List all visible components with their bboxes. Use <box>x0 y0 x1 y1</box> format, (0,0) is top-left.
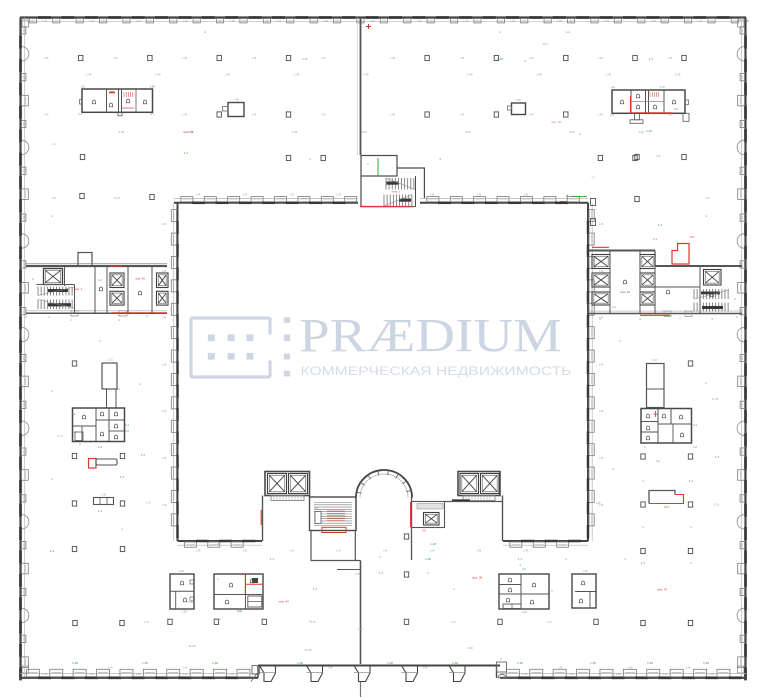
svg-text:1.1: 1.1 <box>237 609 241 613</box>
svg-text:КОММЕРЧЕСКАЯ НЕДВИЖИМОСТЬ: КОММЕРЧЕСКАЯ НЕДВИЖИМОСТЬ <box>301 364 572 378</box>
svg-text:41.98: 41.98 <box>188 644 196 648</box>
svg-text:1.1: 1.1 <box>653 237 657 241</box>
svg-text:16.16: 16.16 <box>114 197 121 200</box>
svg-text:1.48: 1.48 <box>155 73 161 77</box>
svg-text:1.1: 1.1 <box>566 30 570 34</box>
svg-text:1.48: 1.48 <box>646 129 652 133</box>
svg-text:1.1: 1.1 <box>693 423 697 427</box>
svg-text:5.18: 5.18 <box>659 85 665 89</box>
svg-text:1.48: 1.48 <box>604 19 610 23</box>
svg-text:пом. 44: пом. 44 <box>278 600 289 604</box>
svg-text:1.48: 1.48 <box>233 98 239 102</box>
svg-text:1.48: 1.48 <box>582 569 588 573</box>
svg-text:1.1: 1.1 <box>313 587 317 591</box>
svg-text:1.48: 1.48 <box>656 155 661 158</box>
svg-text:1.48: 1.48 <box>162 458 167 460</box>
svg-text:1.78: 1.78 <box>355 573 360 576</box>
svg-text:1.48: 1.48 <box>162 364 167 366</box>
svg-text:пом. 40: пом. 40 <box>551 120 562 124</box>
svg-text:1.28: 1.28 <box>596 502 601 505</box>
svg-text:1.98: 1.98 <box>521 610 527 614</box>
svg-text:3.08: 3.08 <box>361 130 367 134</box>
svg-text:1.48: 1.48 <box>459 57 464 60</box>
svg-text:1.48: 1.48 <box>89 672 95 676</box>
svg-text:1.48: 1.48 <box>459 114 464 117</box>
svg-text:3.08: 3.08 <box>465 130 471 134</box>
svg-text:1.48: 1.48 <box>650 19 656 23</box>
svg-text:17.71: 17.71 <box>57 435 64 438</box>
svg-text:1.48: 1.48 <box>183 667 188 670</box>
svg-text:1.48: 1.48 <box>477 195 482 197</box>
svg-text:1.48: 1.48 <box>529 57 534 60</box>
svg-text:4.8: 4.8 <box>422 530 426 533</box>
svg-text:1.48: 1.48 <box>44 114 49 117</box>
svg-text:1.48: 1.48 <box>289 195 294 197</box>
svg-text:1.48: 1.48 <box>86 73 92 77</box>
svg-text:пq: пq <box>656 459 660 463</box>
svg-text:1.0: 1.0 <box>522 568 526 571</box>
svg-text:1.48: 1.48 <box>178 569 184 573</box>
svg-text:1.78: 1.78 <box>451 621 456 624</box>
svg-text:1.48: 1.48 <box>387 661 393 665</box>
svg-text:1.48: 1.48 <box>569 672 575 676</box>
svg-text:1.48: 1.48 <box>243 195 248 197</box>
svg-text:1.48: 1.48 <box>162 318 167 320</box>
svg-text:1.48: 1.48 <box>686 667 691 670</box>
svg-text:3.08: 3.08 <box>569 130 575 134</box>
svg-text:пом. 40: пом. 40 <box>620 290 630 294</box>
svg-text:1.2: 1.2 <box>141 453 145 457</box>
svg-text:1.48: 1.48 <box>294 73 300 77</box>
svg-text:1.48: 1.48 <box>149 85 155 89</box>
svg-text:1.48: 1.48 <box>328 667 333 670</box>
svg-text:1.48: 1.48 <box>628 667 633 670</box>
svg-text:1.48: 1.48 <box>136 672 142 676</box>
svg-text:1.48: 1.48 <box>276 19 282 23</box>
svg-text:1.48: 1.48 <box>598 57 603 60</box>
svg-text:1.48: 1.48 <box>243 551 248 553</box>
svg-text:1.1: 1.1 <box>715 455 719 459</box>
svg-text:1.48: 1.48 <box>101 494 106 497</box>
svg-text:1.48: 1.48 <box>463 19 469 23</box>
svg-text:1.48: 1.48 <box>182 672 188 676</box>
svg-text:1.48: 1.48 <box>599 505 604 507</box>
svg-text:1.48: 1.48 <box>323 19 329 23</box>
svg-text:4.98: 4.98 <box>187 600 193 604</box>
svg-text:1.48: 1.48 <box>662 672 668 676</box>
svg-text:1.48: 1.48 <box>336 551 341 553</box>
svg-text:1.48: 1.48 <box>336 195 341 197</box>
svg-text:1.1: 1.1 <box>641 561 645 565</box>
svg-text:1.78: 1.78 <box>311 621 316 624</box>
svg-text:1.48: 1.48 <box>709 672 715 676</box>
svg-text:1.48: 1.48 <box>297 661 303 665</box>
svg-text:44.0: 44.0 <box>542 42 548 46</box>
svg-text:1.48: 1.48 <box>675 73 681 77</box>
svg-text:1.48: 1.48 <box>667 114 672 117</box>
svg-text:1.48: 1.48 <box>252 114 257 117</box>
svg-text:1.48: 1.48 <box>667 57 672 60</box>
svg-text:1.48: 1.48 <box>370 19 376 23</box>
svg-text:2.27: 2.27 <box>652 358 658 362</box>
svg-text:1.48: 1.48 <box>108 667 113 670</box>
svg-text:1.2: 1.2 <box>611 85 615 89</box>
svg-text:1.48: 1.48 <box>289 551 294 553</box>
svg-text:1.48: 1.48 <box>598 114 603 117</box>
svg-text:1.48: 1.48 <box>647 661 653 665</box>
svg-text:1.4: 1.4 <box>98 278 102 282</box>
svg-text:пом. 40: пом. 40 <box>135 277 145 281</box>
svg-text:1.48: 1.48 <box>182 19 188 23</box>
svg-text:1.1: 1.1 <box>612 305 616 309</box>
svg-text:1.1: 1.1 <box>78 112 82 116</box>
svg-text:2.1: 2.1 <box>150 112 154 116</box>
svg-text:2.48: 2.48 <box>467 646 473 650</box>
svg-text:1.48: 1.48 <box>182 57 187 60</box>
svg-text:1.1: 1.1 <box>50 549 54 553</box>
svg-text:13.48: 13.48 <box>712 398 719 401</box>
svg-text:1.48: 1.48 <box>477 551 482 553</box>
svg-text:1.1: 1.1 <box>116 387 120 391</box>
svg-text:1.48: 1.48 <box>182 114 187 117</box>
svg-text:1.48: 1.48 <box>510 19 516 23</box>
svg-text:1.1: 1.1 <box>518 557 522 561</box>
svg-text:1.48: 1.48 <box>42 672 48 676</box>
svg-text:пом. 38: пом. 38 <box>472 576 483 580</box>
svg-text:1.48: 1.48 <box>557 19 563 23</box>
svg-text:1.48: 1.48 <box>517 661 523 665</box>
svg-text:п.3: п.3 <box>314 506 318 510</box>
svg-text:пом. 2: пом. 2 <box>392 190 401 194</box>
svg-text:1.48: 1.48 <box>196 195 201 197</box>
svg-text:1.48: 1.48 <box>523 551 528 553</box>
svg-text:8.48: 8.48 <box>302 57 308 61</box>
svg-text:1.1: 1.1 <box>98 509 102 513</box>
svg-text:1.48: 1.48 <box>423 667 428 670</box>
svg-text:1.48: 1.48 <box>321 57 326 60</box>
svg-text:3.3: 3.3 <box>674 107 678 111</box>
svg-text:1.48: 1.48 <box>162 224 167 226</box>
svg-text:1.1: 1.1 <box>610 113 614 117</box>
svg-text:1.1: 1.1 <box>270 557 274 561</box>
svg-text:1.48: 1.48 <box>363 73 369 77</box>
svg-text:1.48: 1.48 <box>523 195 528 197</box>
svg-text:1.48: 1.48 <box>416 19 422 23</box>
svg-text:1.48: 1.48 <box>430 551 435 553</box>
svg-text:1.27: 1.27 <box>107 358 113 362</box>
svg-text:1.1: 1.1 <box>120 475 124 479</box>
svg-text:1.2: 1.2 <box>98 445 102 449</box>
svg-text:1.48: 1.48 <box>142 661 148 665</box>
svg-text:1.98: 1.98 <box>181 610 187 614</box>
svg-text:1.48: 1.48 <box>522 672 528 676</box>
svg-text:1.48: 1.48 <box>383 551 388 553</box>
svg-text:1.48: 1.48 <box>529 114 534 117</box>
svg-text:3.08: 3.08 <box>119 130 125 134</box>
svg-text:1.48: 1.48 <box>599 411 604 413</box>
svg-text:1.48: 1.48 <box>697 19 703 23</box>
svg-text:1.48: 1.48 <box>321 114 326 117</box>
svg-text:1.48: 1.48 <box>44 57 49 60</box>
svg-text:1.48: 1.48 <box>599 224 604 226</box>
svg-text:13.48: 13.48 <box>305 648 312 652</box>
svg-text:1.78: 1.78 <box>144 621 149 624</box>
svg-text:1.2: 1.2 <box>81 85 85 89</box>
svg-text:пом. 1: пом. 1 <box>74 287 83 291</box>
svg-text:1.48: 1.48 <box>196 551 201 553</box>
svg-text:1.48: 1.48 <box>590 661 596 665</box>
svg-text:1.1: 1.1 <box>658 223 662 227</box>
svg-text:1.48: 1.48 <box>599 364 604 366</box>
svg-text:1.1: 1.1 <box>72 430 76 434</box>
svg-text:1.48: 1.48 <box>229 19 235 23</box>
svg-text:1.48: 1.48 <box>430 195 435 197</box>
svg-text:1.48: 1.48 <box>390 114 395 117</box>
svg-text:1.48: 1.48 <box>497 57 503 61</box>
svg-text:1.2: 1.2 <box>693 445 697 449</box>
svg-text:13.48: 13.48 <box>214 617 221 621</box>
svg-text:1.48: 1.48 <box>452 661 458 665</box>
svg-text:3.08: 3.08 <box>292 130 298 134</box>
svg-text:1.1: 1.1 <box>125 423 129 427</box>
svg-text:1.48: 1.48 <box>212 661 218 665</box>
svg-text:1.48: 1.48 <box>72 661 78 665</box>
svg-text:1.48: 1.48 <box>606 73 612 77</box>
svg-text:1.78: 1.78 <box>714 504 719 507</box>
svg-text:1.48: 1.48 <box>224 73 230 77</box>
svg-text:1.48: 1.48 <box>425 557 431 561</box>
svg-text:1.67: 1.67 <box>689 235 695 239</box>
svg-text:1.48: 1.48 <box>430 542 436 546</box>
svg-text:1.1: 1.1 <box>379 571 383 575</box>
svg-text:1.48: 1.48 <box>390 57 395 60</box>
svg-text:1.48: 1.48 <box>89 19 95 23</box>
svg-text:1.78: 1.78 <box>547 621 552 624</box>
svg-text:1.48: 1.48 <box>113 57 118 60</box>
svg-text:1.48: 1.48 <box>252 57 257 60</box>
svg-text:1.1: 1.1 <box>184 151 188 155</box>
svg-text:4.87: 4.87 <box>52 197 57 200</box>
svg-text:1.64: 1.64 <box>663 505 669 509</box>
svg-text:1.48: 1.48 <box>136 19 142 23</box>
svg-text:3.08: 3.08 <box>638 130 644 134</box>
svg-text:1.48: 1.48 <box>42 19 48 23</box>
svg-text:1.48: 1.48 <box>515 98 521 102</box>
svg-text:1.48: 1.48 <box>558 667 563 670</box>
svg-text:1.1: 1.1 <box>649 57 653 61</box>
svg-text:1.48: 1.48 <box>616 672 622 676</box>
svg-text:1.48: 1.48 <box>162 411 167 413</box>
svg-text:пом. 31: пом. 31 <box>183 130 194 134</box>
svg-text:1.1: 1.1 <box>689 479 693 483</box>
svg-text:1.78: 1.78 <box>705 197 710 200</box>
svg-text:1.78: 1.78 <box>146 502 151 505</box>
svg-text:1.48: 1.48 <box>229 672 235 676</box>
svg-text:1.48: 1.48 <box>536 73 542 77</box>
svg-text:1.48: 1.48 <box>467 73 473 77</box>
svg-text:1.2: 1.2 <box>125 429 129 433</box>
svg-text:PRÆDIUM: PRÆDIUM <box>299 310 562 363</box>
svg-text:1.27: 1.27 <box>357 627 363 631</box>
svg-text:пом. 47: пом. 47 <box>657 588 668 592</box>
svg-text:1.48: 1.48 <box>703 661 709 665</box>
svg-text:1.48: 1.48 <box>162 505 167 507</box>
svg-text:1.48: 1.48 <box>599 458 604 460</box>
